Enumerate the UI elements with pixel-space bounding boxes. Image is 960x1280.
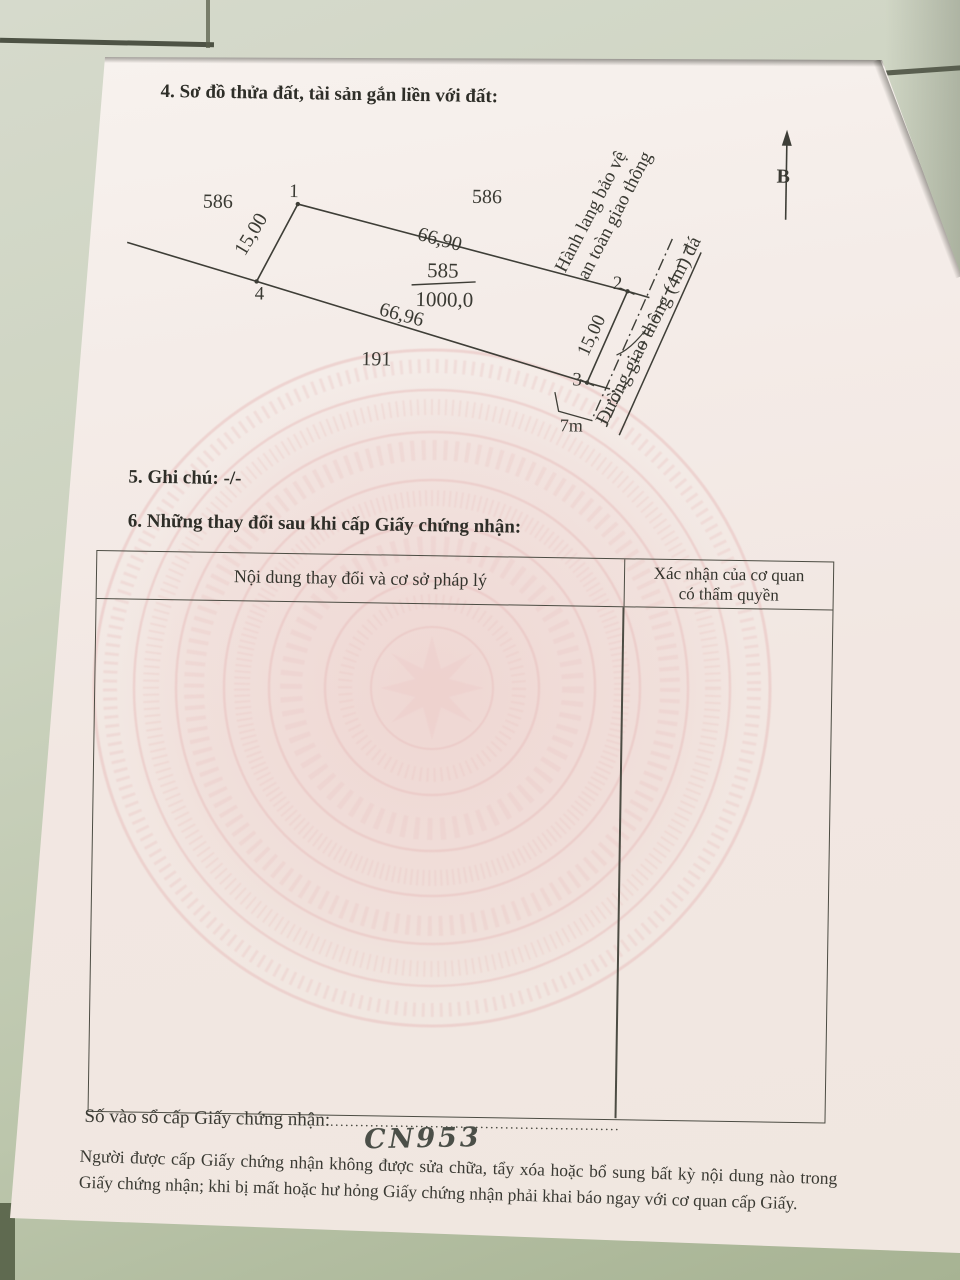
wall-seam bbox=[206, 0, 210, 48]
changes-col2-header-line1: Xác nhận của cơ quan bbox=[654, 564, 805, 585]
wall-groove-top bbox=[0, 38, 214, 47]
north-arrow-head bbox=[782, 130, 792, 146]
parcel-diagram: B 586 1 586 66,90 585 1000,0 66,96 15,00… bbox=[3, 0, 960, 478]
left-edge-length-label: 15,00 bbox=[230, 209, 272, 259]
certificate-page: 4. Sơ đồ thửa đất, tài sản gắn liền với … bbox=[0, 0, 960, 1280]
registry-number-handwritten: CN953 bbox=[364, 1122, 482, 1155]
changes-col2-header: Xác nhận của cơ quan có thẩm quyền bbox=[625, 559, 834, 609]
changes-table: Nội dung thay đổi và cơ sở pháp lý Xác n… bbox=[88, 550, 835, 1124]
changes-col2-header-line2: có thẩm quyền bbox=[679, 584, 779, 605]
top-edge-length-label: 66,90 bbox=[415, 223, 464, 256]
vertex-2-label: 2 bbox=[613, 273, 623, 294]
registry-label: Số vào sổ cấp Giấy chứng nhận: bbox=[84, 1106, 330, 1131]
neighbor-plot-bottom-label: 191 bbox=[361, 348, 391, 370]
north-label: B bbox=[776, 166, 790, 188]
right-edge-length-label: 15,00 bbox=[573, 312, 610, 360]
neighbor-plot-top-label: 586 bbox=[472, 186, 502, 208]
vertex-1-label: 1 bbox=[289, 181, 299, 202]
changes-table-body bbox=[89, 599, 833, 1121]
section6-title: 6. Những thay đổi sau khi cấp Giấy chứng… bbox=[128, 510, 522, 538]
road-label-group: Đường giao thông (4m) đá bbox=[592, 233, 706, 428]
parcel-number-label: 585 bbox=[427, 258, 459, 282]
neighbor-plot-left-label: 586 bbox=[203, 191, 233, 213]
vertex-3-label: 3 bbox=[572, 369, 582, 390]
photo-scene: 4. Sơ đồ thửa đất, tài sản gắn liền với … bbox=[0, 0, 960, 1280]
vertex-4-label: 4 bbox=[254, 283, 264, 304]
changes-col1-header: Nội dung thay đổi và cơ sở pháp lý bbox=[97, 551, 626, 606]
page-content: 4. Sơ đồ thửa đất, tài sản gắn liền với … bbox=[0, 0, 960, 1280]
corridor-label: Hành lang bảo vệ an toàn giao thông bbox=[551, 137, 657, 286]
footer-notice: Người được cấp Giấy chứng nhận không đượ… bbox=[78, 1143, 837, 1218]
road-frontage-label: 7m bbox=[560, 415, 583, 435]
parcel-area-label: 1000,0 bbox=[415, 287, 473, 312]
road-label: Đường giao thông (4m) đá bbox=[592, 233, 706, 428]
changes-table-divider bbox=[615, 607, 625, 1118]
section5-title: 5. Ghi chú: -/- bbox=[128, 466, 241, 490]
